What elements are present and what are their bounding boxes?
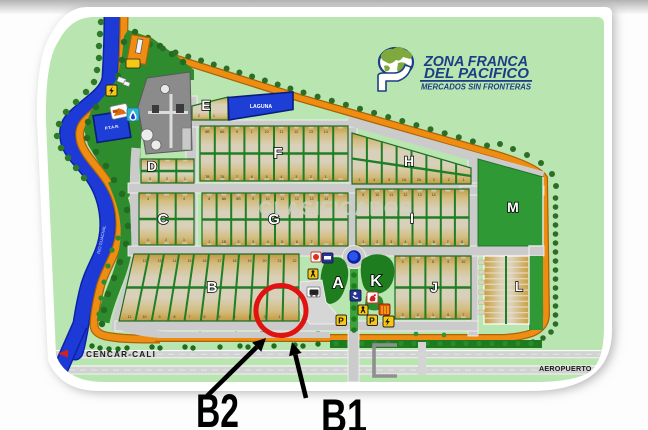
svg-text:4: 4 [404,240,406,244]
svg-text:6: 6 [204,315,206,319]
svg-text:F: F [273,145,282,162]
svg-text:2: 2 [376,240,378,244]
svg-text:7B: 7B [205,175,210,179]
svg-text:9: 9 [447,260,449,264]
svg-text:12: 12 [143,259,147,263]
svg-text:22: 22 [293,259,297,263]
svg-text:1: 1 [325,175,327,179]
svg-text:10: 10 [375,193,379,197]
svg-text:12: 12 [294,130,298,134]
svg-text:1B: 1B [222,240,227,244]
svg-text:3: 3 [390,240,392,244]
svg-text:7: 7 [447,240,449,244]
svg-text:5: 5 [219,315,221,319]
svg-text:M: M [507,199,519,215]
svg-text:L: L [515,279,523,294]
svg-text:4: 4 [183,197,185,201]
svg-text:P: P [369,316,375,326]
svg-text:5: 5 [266,175,268,179]
svg-text:16: 16 [203,259,207,263]
svg-text:B1: B1 [321,389,367,430]
svg-text:2: 2 [165,238,167,242]
svg-text:4: 4 [373,178,375,182]
svg-text:4: 4 [147,197,149,201]
svg-text:8: 8 [461,240,463,244]
svg-text:3: 3 [402,313,404,317]
svg-text:3: 3 [149,177,151,181]
svg-text:4: 4 [267,240,269,244]
svg-text:17: 17 [218,259,222,263]
svg-text:9: 9 [159,315,161,319]
svg-text:7: 7 [462,313,464,317]
svg-text:13: 13 [309,130,313,134]
svg-text:1: 1 [213,114,215,118]
svg-text:8: 8 [174,315,176,319]
svg-text:9: 9 [252,197,254,201]
svg-text:11: 11 [128,315,132,319]
svg-text:CLASIFICADOS: CLASIFICADOS [259,199,414,220]
svg-text:10: 10 [143,315,147,319]
svg-text:8B: 8B [205,130,210,134]
svg-text:8A: 8A [220,130,225,134]
svg-text:7A: 7A [220,175,225,179]
svg-text:9: 9 [362,193,364,197]
svg-text:3: 3 [433,178,435,182]
svg-text:15: 15 [188,259,192,263]
svg-text:D: D [147,158,157,174]
svg-text:B: B [207,279,218,296]
svg-text:3: 3 [252,240,254,244]
svg-text:A: A [332,275,344,292]
svg-text:1: 1 [251,130,253,134]
svg-text:2: 2 [198,114,200,118]
svg-text:5: 5 [388,178,390,182]
svg-text:K: K [370,273,382,290]
svg-text:8B: 8B [236,197,241,201]
svg-text:1: 1 [208,240,210,244]
svg-text:6: 6 [433,240,435,244]
svg-text:CENCAR-CALI: CENCAR-CALI [86,350,156,359]
svg-text:E: E [201,97,210,113]
svg-text:1A: 1A [402,178,407,182]
svg-text:1: 1 [362,240,364,244]
svg-text:1: 1 [432,313,434,317]
svg-text:2: 2 [310,175,312,179]
svg-text:13: 13 [418,193,422,197]
svg-text:5: 5 [417,260,419,264]
svg-text:12: 12 [403,193,407,197]
svg-text:1: 1 [184,177,186,181]
svg-text:14: 14 [432,193,436,197]
svg-text:5: 5 [419,240,421,244]
svg-text:DEL PACIFICO: DEL PACIFICO [424,66,530,82]
svg-text:C: C [158,211,169,228]
svg-text:4: 4 [280,175,282,179]
svg-text:11: 11 [280,130,284,134]
svg-text:LAGUNA: LAGUNA [250,104,272,110]
svg-text:14: 14 [173,259,177,263]
svg-text:AEROPUERTO: AEROPUERTO [539,364,592,373]
svg-text:5: 5 [281,240,283,244]
svg-text:11: 11 [389,193,393,197]
svg-text:2: 2 [166,177,168,181]
svg-text:4: 4 [402,260,404,264]
svg-text:B2: B2 [196,384,239,430]
svg-text:13: 13 [158,259,162,263]
svg-text:2: 2 [264,315,266,319]
svg-text:H: H [404,153,414,169]
svg-text:8: 8 [208,197,210,201]
svg-text:19: 19 [248,259,252,263]
svg-text:1: 1 [183,238,185,242]
svg-text:9: 9 [236,130,238,134]
svg-text:1: 1 [279,315,281,319]
svg-text:1: 1 [147,238,149,242]
svg-text:18: 18 [233,259,237,263]
svg-text:6: 6 [447,313,449,317]
svg-text:10: 10 [265,130,269,134]
svg-text:1: 1 [463,178,465,182]
svg-text:8: 8 [432,260,434,264]
svg-text:7: 7 [236,175,238,179]
svg-text:8A: 8A [222,197,227,201]
svg-text:3: 3 [295,175,297,179]
svg-text:7: 7 [189,315,191,319]
svg-text:4: 4 [234,315,236,319]
svg-text:P: P [338,316,344,326]
svg-text:6: 6 [251,175,253,179]
svg-text:2: 2 [238,240,240,244]
svg-text:21: 21 [278,259,282,263]
svg-text:MERCADOS SIN FRONTERAS: MERCADOS SIN FRONTERAS [421,83,532,92]
svg-text:6: 6 [296,240,298,244]
svg-text:J: J [430,279,438,295]
svg-text:10: 10 [461,260,465,264]
svg-text:20: 20 [263,259,267,263]
svg-text:2A: 2A [417,178,422,182]
svg-text:3: 3 [358,178,360,182]
svg-text:2: 2 [417,313,419,317]
svg-text:14: 14 [324,130,328,134]
svg-text:2: 2 [448,178,450,182]
svg-text:3: 3 [249,315,251,319]
svg-text:7: 7 [311,240,313,244]
